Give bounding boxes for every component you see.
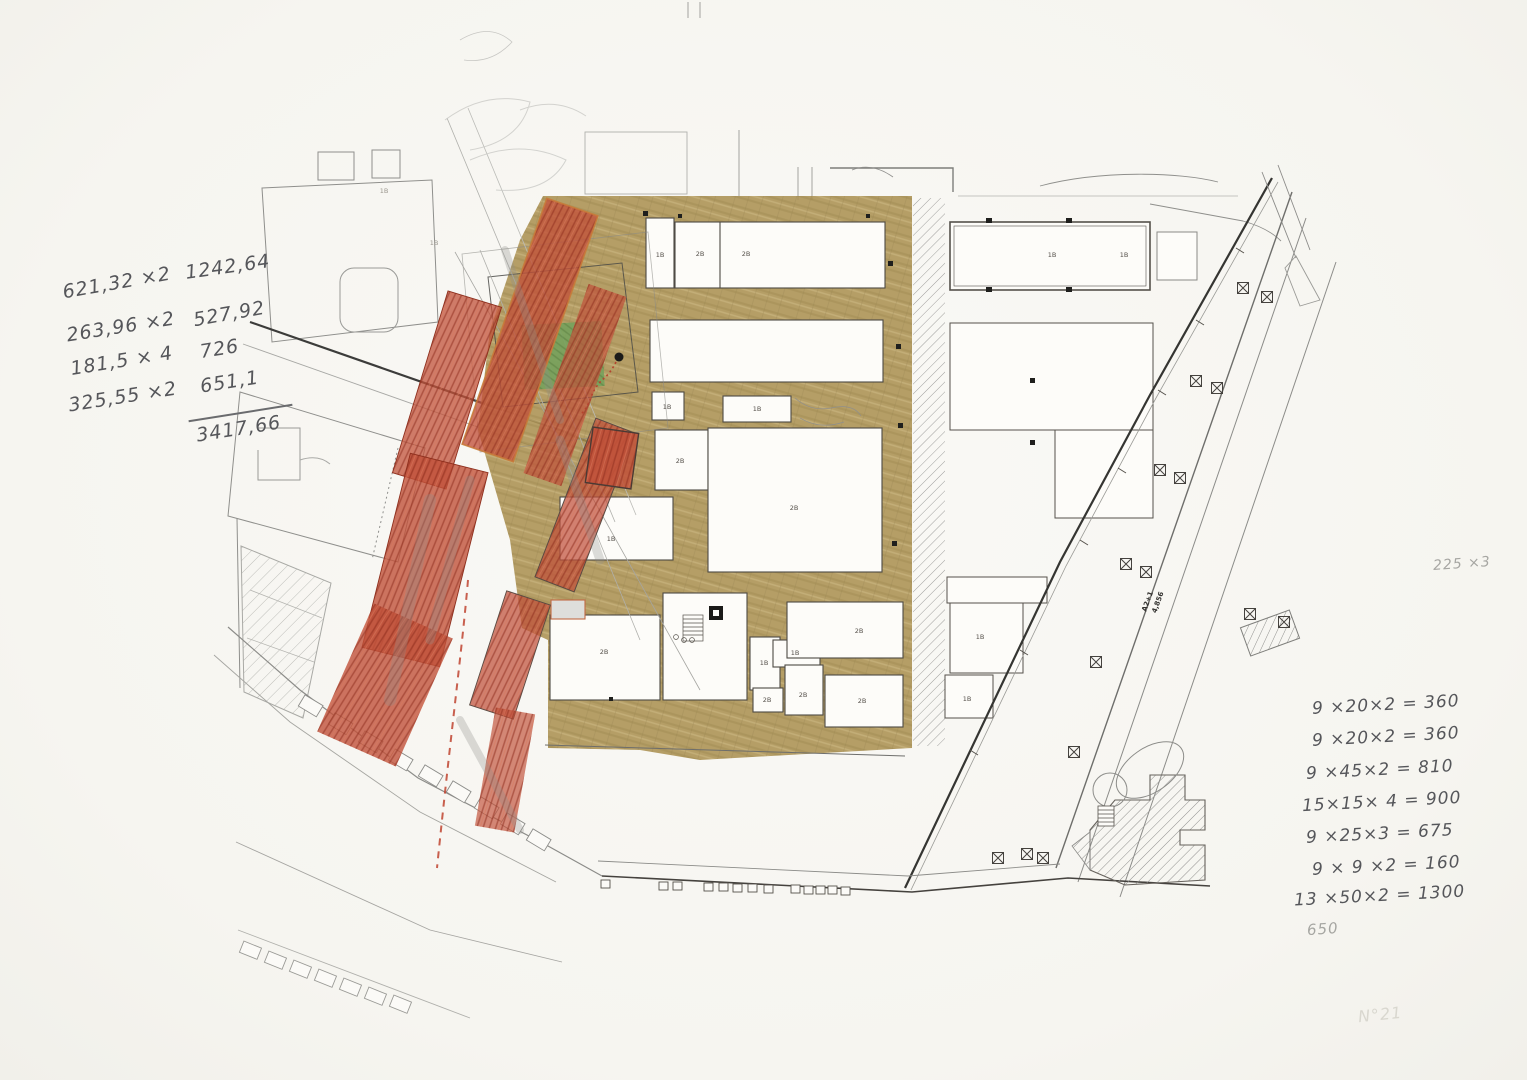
building-label: 1B	[380, 187, 389, 195]
scanned-plan-page: A2+1 4,856	[0, 0, 1527, 1080]
building-label: 1B	[656, 251, 665, 259]
building-label: 2B	[799, 691, 808, 699]
building-label: 2B	[676, 457, 685, 465]
hatched-building-southeast	[1072, 730, 1205, 885]
building-label: 1B	[1120, 251, 1129, 259]
building-label: 2B	[858, 697, 867, 705]
building-label: 2B	[763, 696, 772, 704]
building-label: 1B	[760, 659, 769, 667]
building-label: 1B	[753, 405, 762, 413]
building-label: 2B	[790, 504, 799, 512]
building-label: 2B	[696, 250, 705, 258]
building-label: 2B	[742, 250, 751, 258]
building-label: 1B	[607, 535, 616, 543]
building-label: 1B	[963, 695, 972, 703]
building-label: 1B	[430, 239, 439, 247]
building-label: 2B	[600, 648, 609, 656]
building-label: 1B	[976, 633, 985, 641]
building-label: 1B	[1048, 251, 1057, 259]
east-hatched-band	[913, 198, 945, 746]
building-label: 1B	[791, 649, 800, 657]
site-plan-drawing: A2+1 4,856	[0, 0, 1527, 1080]
hatched-parcels-block	[241, 546, 331, 718]
red-massing-sketches	[317, 198, 638, 868]
right-buildings	[945, 218, 1197, 718]
building-label: 2B	[855, 627, 864, 635]
building-label: 1B	[663, 403, 672, 411]
